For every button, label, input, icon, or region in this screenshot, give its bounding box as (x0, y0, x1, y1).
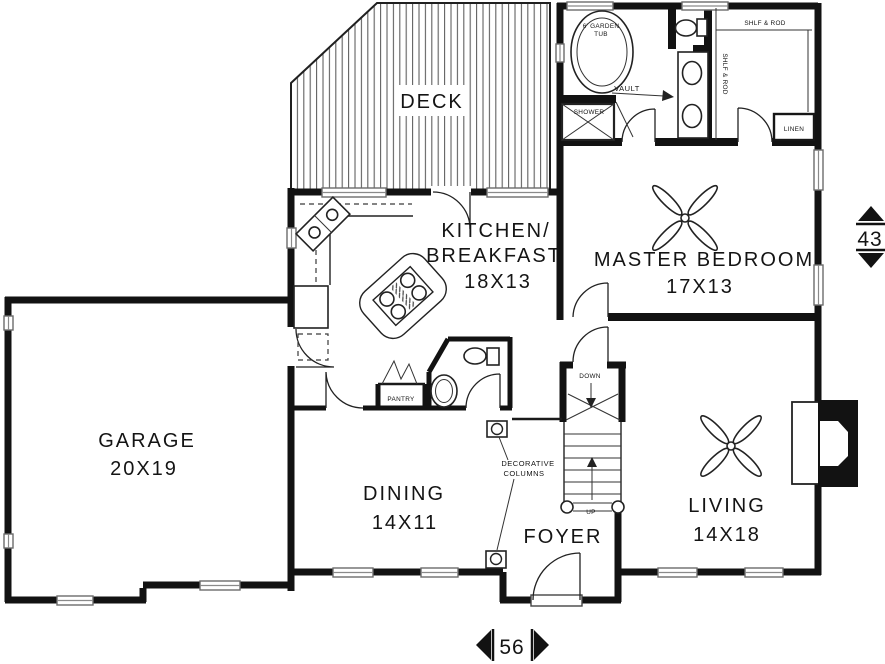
garage: GARAGE 20X19 (98, 430, 196, 480)
toilet-tank (487, 348, 499, 365)
vanity-sink (683, 105, 702, 128)
stair-hall-door (573, 327, 608, 362)
dining-size: 14X11 (372, 512, 438, 534)
window (682, 2, 728, 10)
linen-label: LINEN (784, 126, 804, 133)
toilet-tank (697, 19, 707, 36)
cabinet (298, 334, 328, 360)
living-size: 14X18 (693, 524, 761, 546)
stairs: DOWN UP (561, 373, 624, 516)
master-bedroom-label: MASTER BEDROOM (594, 249, 814, 271)
decorative-columns-label-1: DECORATIVE (501, 459, 554, 468)
dimension-width: 56 (476, 629, 549, 661)
newel-post (612, 501, 624, 513)
kitchen-dining-door (326, 372, 363, 408)
master-bedroom: MASTER BEDROOM 17X13 (594, 183, 814, 298)
stairs-down-label: DOWN (579, 373, 601, 380)
deck-door-opening (431, 186, 471, 197)
ceiling-fan (698, 413, 764, 479)
garden-tub-label-2: TUB (594, 31, 608, 38)
living-label: LIVING (688, 495, 766, 517)
pantry-bifold-door (382, 361, 417, 384)
kitchen-size: 18X13 (464, 271, 532, 293)
width-value: 56 (499, 636, 524, 659)
window (487, 188, 548, 197)
kitchen: KITCHEN/ BREAKFAST 18X13 (294, 197, 562, 360)
garage-door-opening (285, 327, 296, 366)
kitchen-label-1: KITCHEN/ (441, 220, 550, 242)
column-leader-lines (497, 437, 514, 550)
window (567, 2, 613, 10)
window (4, 534, 13, 548)
window (745, 568, 783, 577)
pantry-label: PANTRY (387, 396, 415, 403)
kitchen-label-2: BREAKFAST (426, 245, 562, 267)
ceiling-fan (650, 183, 721, 254)
front-door-sill (531, 595, 582, 606)
floor-plan-page: DECK (0, 0, 885, 664)
down-arrow-icon (858, 253, 884, 268)
toilet-bowl (676, 20, 697, 36)
stair-break-lines (566, 394, 620, 420)
window (333, 568, 373, 577)
garage-size: 20X19 (110, 458, 178, 480)
window (814, 265, 823, 305)
shelf-rod-label-side: SHLF & ROD (721, 53, 728, 94)
window (4, 316, 13, 330)
master-bedroom-door (573, 283, 608, 317)
window (421, 568, 458, 577)
toilet-bowl (464, 348, 486, 364)
deck-label: DECK (400, 91, 464, 113)
powder-room (431, 348, 499, 407)
vault-arrow-line (612, 93, 664, 96)
vault-arrowhead (662, 90, 674, 101)
garage-label: GARAGE (98, 430, 196, 452)
hearth (792, 402, 820, 484)
living: LIVING 14X18 (688, 400, 858, 546)
pantry: PANTRY (382, 361, 417, 403)
vanity-sink (683, 62, 702, 85)
right-arrow-icon (534, 630, 549, 660)
decorative-columns-label-2: COLUMNS (503, 469, 544, 478)
firebox (820, 421, 848, 466)
stairs-up-label: UP (586, 509, 595, 516)
up-arrow-icon (858, 206, 884, 221)
depth-value: 43 (857, 228, 882, 251)
dimension-depth: 43 (856, 206, 885, 268)
window (658, 568, 697, 577)
refrigerator (294, 286, 328, 328)
dining-label: DINING (363, 483, 445, 505)
dining: DINING 14X11 (363, 483, 445, 534)
deck: DECK (291, 3, 550, 190)
foyer-label: FOYER (524, 526, 603, 548)
floor-plan: DECK (0, 0, 885, 664)
window (556, 44, 564, 62)
newel-post (561, 501, 573, 513)
window (814, 150, 823, 190)
window (322, 188, 386, 197)
powder-room-door (466, 374, 500, 408)
window (287, 228, 296, 248)
vault-label: VAULT (614, 84, 640, 93)
shower-label: SHOWER (574, 109, 605, 116)
garden-tub-label-1: 6' GARDEN (583, 23, 620, 30)
closet-door (738, 108, 772, 142)
walk-in-closet: SHLF & ROD SHLF & ROD LINEN (716, 8, 814, 140)
master-bedroom-size: 17X13 (666, 276, 734, 298)
window (57, 596, 93, 605)
corner-sink (296, 197, 350, 251)
fireplace (792, 400, 858, 487)
left-arrow-icon (476, 630, 491, 660)
window (200, 581, 240, 590)
master-bath: 6' GARDEN TUB SHOWER VAULT (562, 11, 708, 140)
front-door (533, 553, 580, 600)
down-arrowhead (586, 398, 596, 408)
shelf-rod-label-top: SHLF & ROD (744, 20, 785, 27)
